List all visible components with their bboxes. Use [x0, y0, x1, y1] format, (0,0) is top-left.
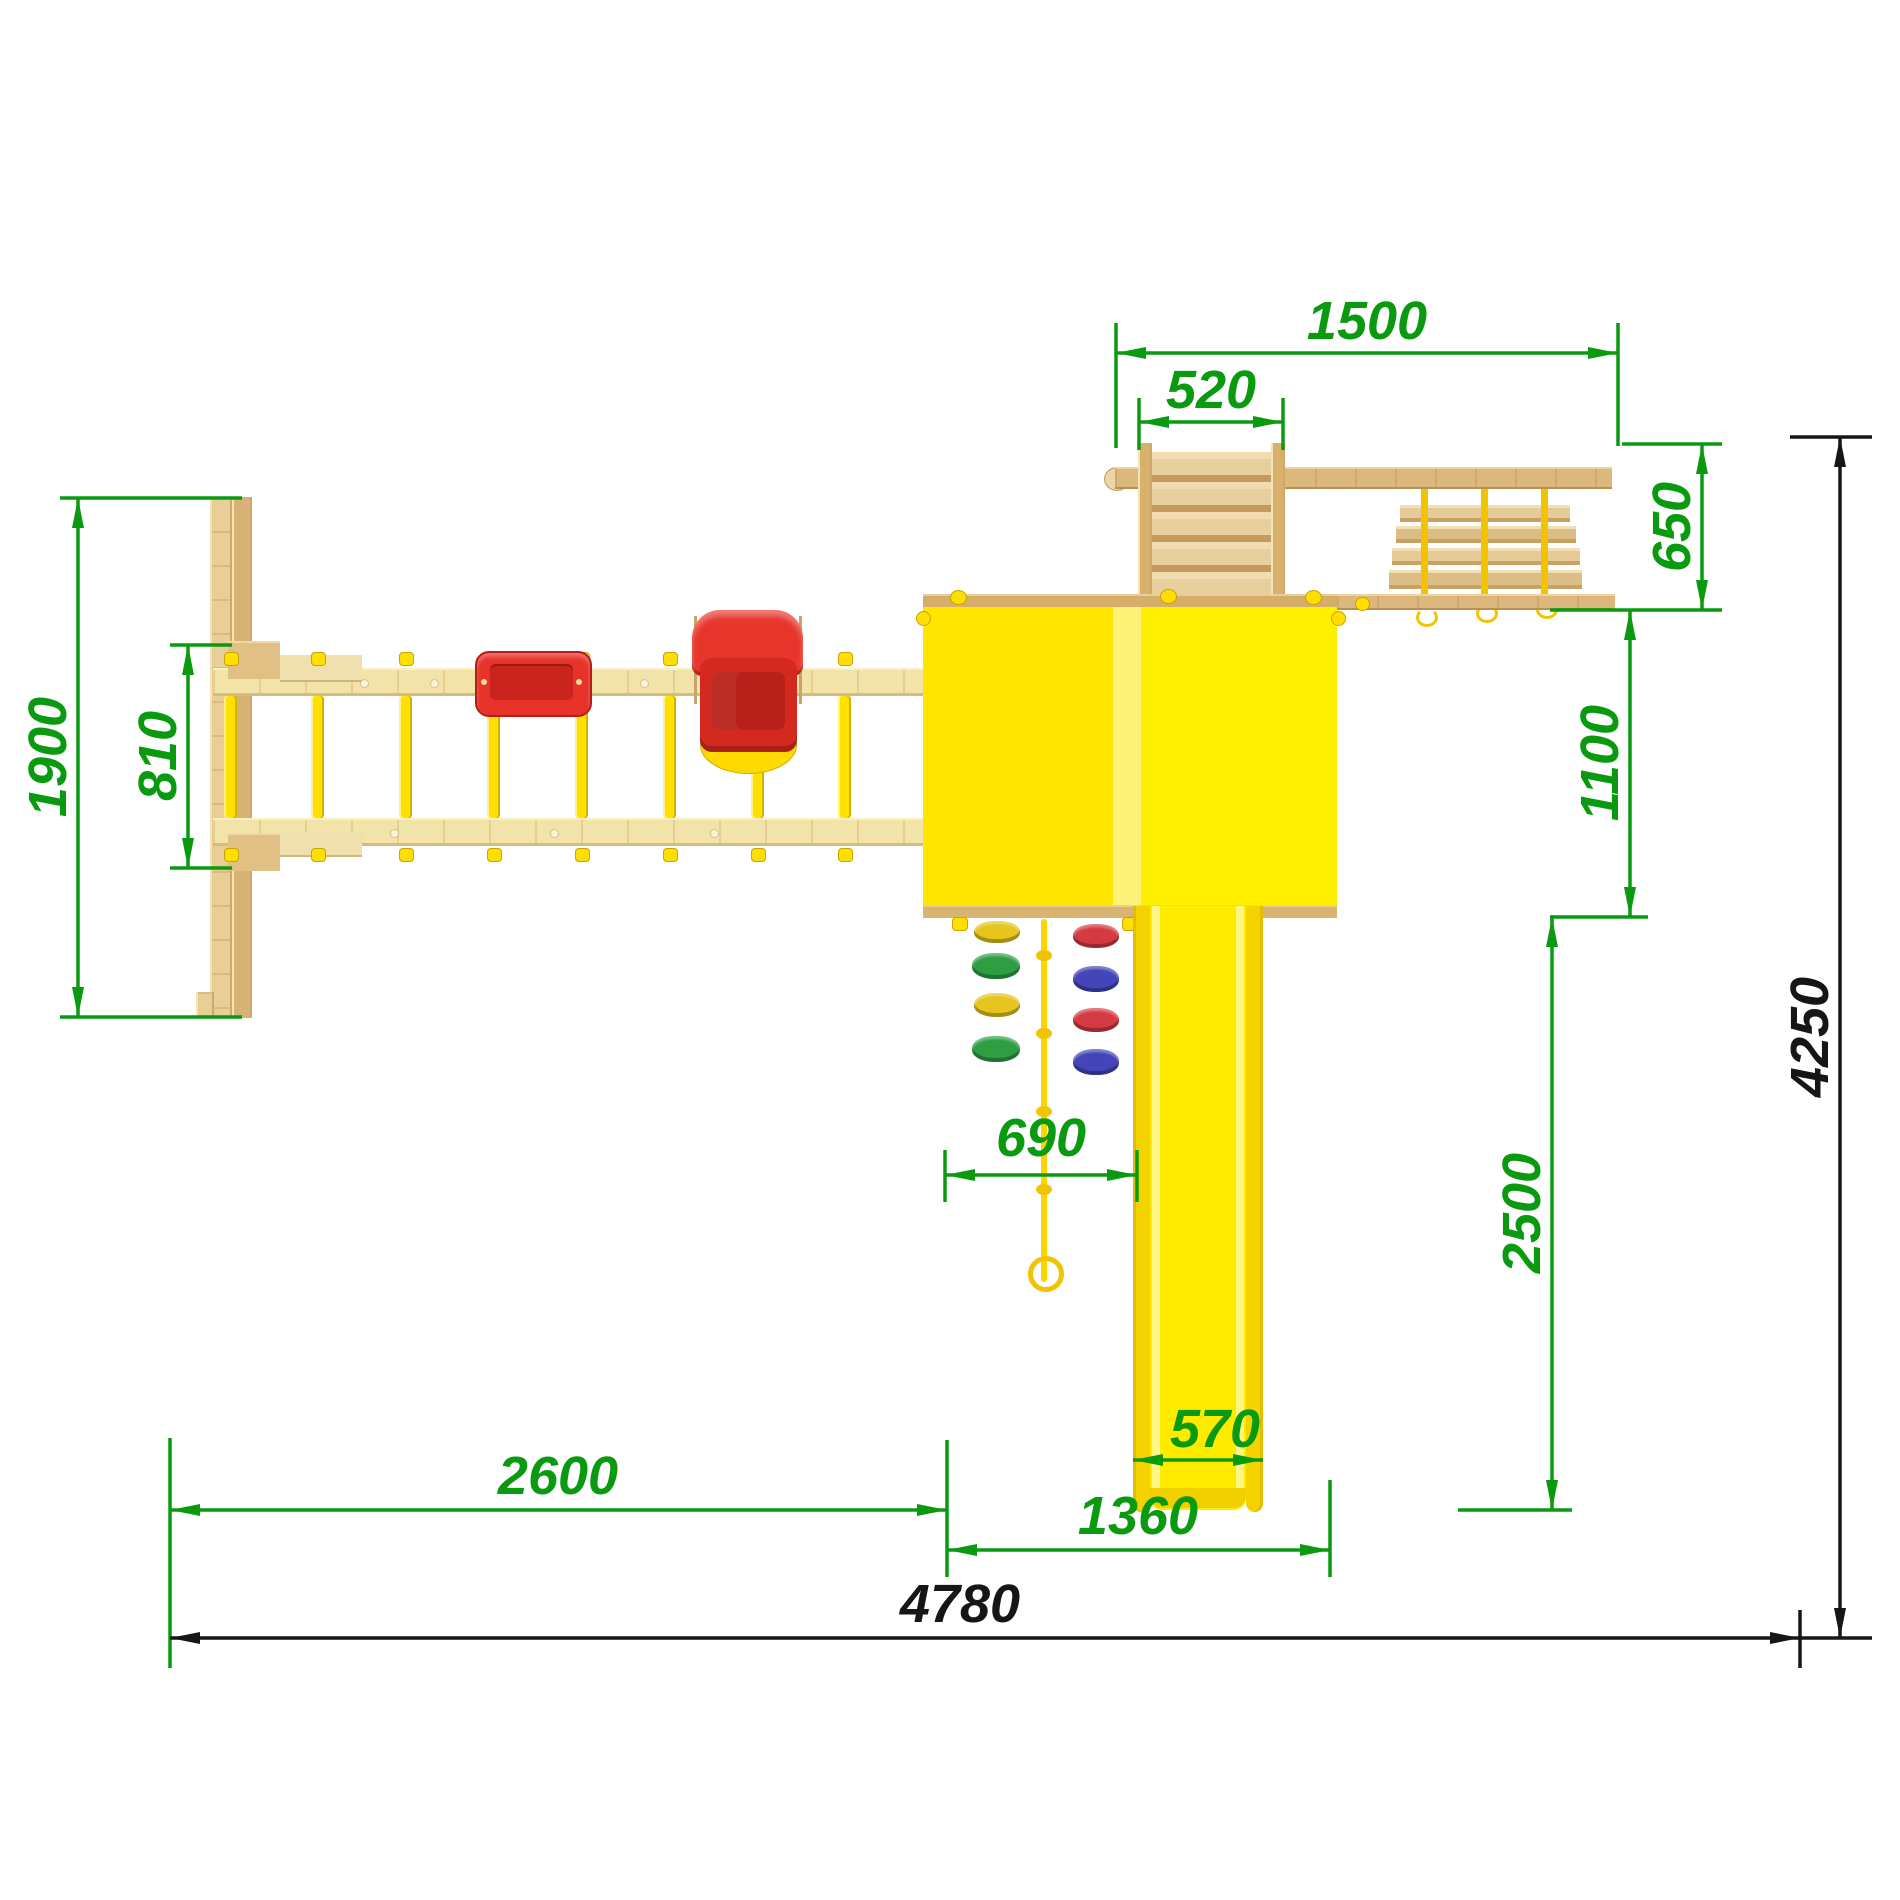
arrowhead — [1770, 1632, 1800, 1644]
dimension-label: 1360 — [1078, 1486, 1198, 1546]
dimension-label: 690 — [996, 1108, 1086, 1168]
arrowhead — [1588, 347, 1618, 359]
arrowhead — [945, 1169, 975, 1181]
dimension-label: 520 — [1166, 360, 1256, 420]
drawing-detail — [60, 323, 1722, 1668]
dimension-label: 1500 — [1307, 291, 1427, 351]
arrowhead — [1624, 887, 1636, 917]
arrowhead — [1107, 1169, 1137, 1181]
arrowhead — [1696, 444, 1708, 474]
arrowhead — [1133, 1454, 1163, 1466]
arrowhead — [1116, 347, 1146, 359]
arrowhead — [182, 645, 194, 675]
arrowhead — [1546, 917, 1558, 947]
arrowhead — [72, 498, 84, 528]
playground-plan-drawing: 1500 520 650 1100 2500 1900 810 690 2600… — [0, 0, 1900, 1900]
arrowhead — [1696, 580, 1708, 610]
arrowhead — [1253, 416, 1283, 428]
dimension-layer: 1500 520 650 1100 2500 1900 810 690 2600… — [0, 0, 1900, 1900]
arrowhead — [1834, 437, 1846, 467]
dimension-label: 650 — [1642, 482, 1702, 572]
dimension-label: 4780 — [899, 1574, 1020, 1634]
dimension-label: 2500 — [1492, 1153, 1552, 1274]
arrowhead — [1834, 1608, 1846, 1638]
arrowhead — [1546, 1480, 1558, 1510]
dimension-label: 810 — [128, 711, 188, 801]
arrowhead — [1139, 416, 1169, 428]
arrowhead — [1624, 610, 1636, 640]
dimension-label: 570 — [1170, 1399, 1260, 1459]
arrowhead — [72, 987, 84, 1017]
arrowhead — [182, 838, 194, 868]
arrowhead — [170, 1632, 200, 1644]
arrowhead — [947, 1544, 977, 1556]
arrowhead — [1300, 1544, 1330, 1556]
dimension-label: 4250 — [1780, 977, 1840, 1098]
dimension-label: 1900 — [18, 697, 78, 817]
arrowhead — [917, 1504, 947, 1516]
dimension-label: 2600 — [497, 1446, 618, 1506]
drawing-detail — [170, 437, 1872, 1668]
arrowhead — [170, 1504, 200, 1516]
dimension-label: 1100 — [1570, 705, 1630, 821]
